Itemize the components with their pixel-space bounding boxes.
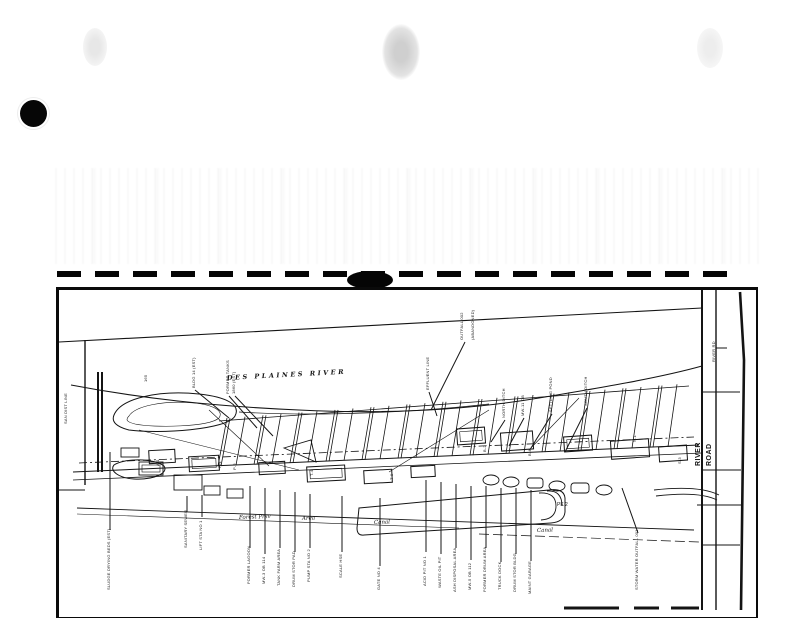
cursive-note: Forest Prsv [238,514,272,521]
map-label: MW-3 OB 114 [261,556,266,584]
parcel-label: B-2 [482,445,487,452]
parcel-hatching [218,384,677,466]
cursive-note: Canal [537,527,554,534]
map-label: FORMER LAGOON [246,546,251,584]
map-label: DRUM STOR BLDG [512,553,517,592]
leader-line [429,392,437,416]
map-label: SOUTH DITCH [583,376,588,406]
map-label: BLDG 14 (EST) [191,357,196,388]
road-small-label: RIVER RD [711,341,716,362]
leader-line [431,342,465,410]
ink-bleedthrough [55,168,760,264]
map-label: FORMER DRUM AREA [482,546,487,592]
map-label: TRUCK DOCK [497,561,502,590]
map-label: SANITARY SEWER [183,510,188,548]
map-label: FORMER TANKS [225,360,230,394]
map-label: 165 [143,374,148,382]
map-label: ASH DISPOSAL AREA [452,547,457,592]
parcel-label: T-4 [309,469,314,476]
label-leader-lines [110,342,638,566]
map-linework [59,290,744,610]
boundary-label: SAN DIST LINE [63,393,68,424]
site-plan-drawing: DES PLAINES RIVERRIVERROADRIVER RDSAN DI… [59,290,750,610]
map-label: LIFT STA NO 1 [198,520,203,550]
leader-line [229,396,257,428]
map-label: (ABANDONED) [470,309,475,340]
parcel-label: P-2 [232,463,237,470]
map-label: DRUM STOR PAD [291,551,296,587]
map-label: GATE NO 4 [376,567,381,590]
hole-punch-center [382,24,420,80]
cursive-note: Area [301,516,315,522]
map-label: STORM WATER OUTFALL 001 [634,529,639,590]
map-label: ACID PIT NO 1 [422,556,427,586]
map-frame: DES PLAINES RIVERRIVERROADRIVER RDSAN DI… [56,287,758,618]
map-label: TANK FARM AREA [276,549,281,586]
punch-dot [20,100,47,127]
cursive-note: Canal [374,519,391,526]
map-label: MAINT GARAGE [527,561,532,594]
leader-line [622,488,638,533]
hole-punch-left [83,28,107,66]
parcel-label: P-1 [217,461,222,468]
parcel-label: N-1 [632,434,637,442]
map-label: OUTFALL 002 [459,312,464,340]
scanned-page: DES PLAINES RIVERRIVERROADRIVER RDSAN DI… [0,0,800,618]
map-label: SCALE HSE [338,554,343,578]
map-label: WASTE OIL PIT [437,556,442,588]
map-label: NORTH DITCH [501,388,506,418]
parcel-label: A-1 [155,459,160,466]
hole-punch-right [697,28,723,68]
leader-line [235,396,273,436]
river-name-label: DES PLAINES RIVER [226,368,347,382]
map-label: SETTLING POND [548,377,553,412]
map-label: MW-5 OB 112 [467,562,472,590]
map-label: EFFLUENT LINE [425,357,430,390]
parcel-label: B-4 [527,449,532,456]
road-name-word-1: RIVER [695,442,702,466]
parcel-label: T-9 [389,473,394,480]
map-label: MW-11 OB [520,395,525,416]
perforation-dash-line [57,271,741,277]
parcel-label: S-3 [677,457,682,464]
map-label: 1860 (EST) [231,371,236,394]
map-labels: DES PLAINES RIVERRIVERROADRIVER RDSAN DI… [63,309,716,594]
map-label: SLUDGE DRYING BEDS (EST) [106,528,111,590]
parcel-label: PK 2 [557,502,568,508]
map-label: PUMP STA NO 2 [306,549,311,582]
road-name-word-2: ROAD [706,443,713,466]
